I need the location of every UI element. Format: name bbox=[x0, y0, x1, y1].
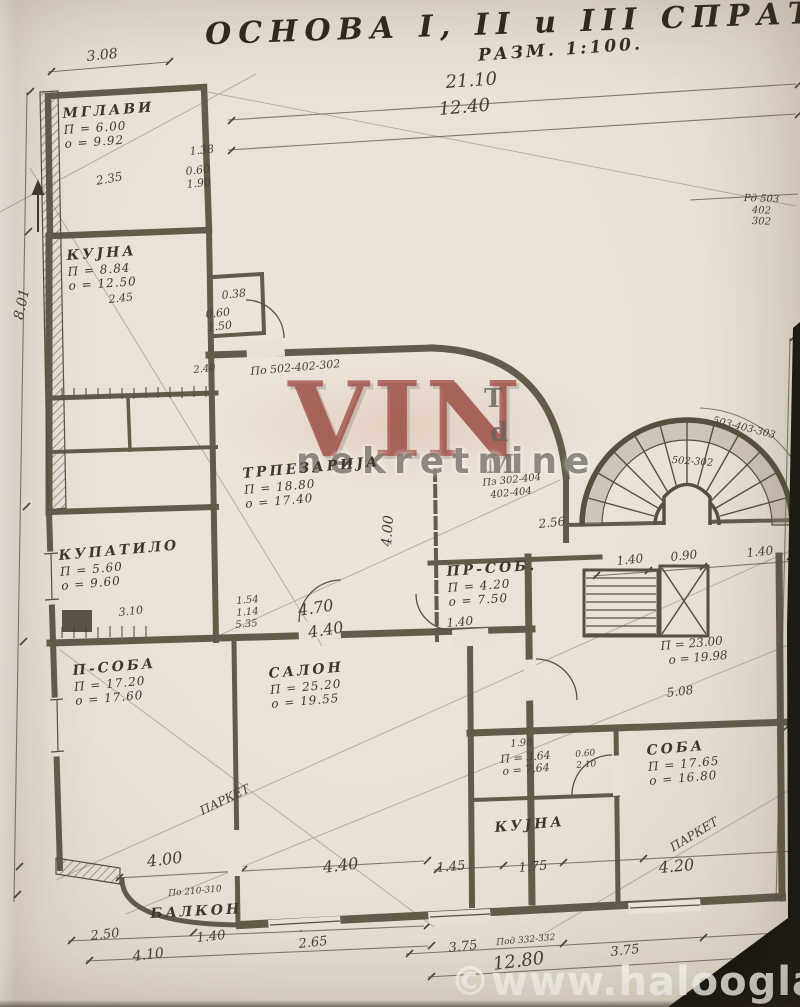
dimension-annotation: 3.75 bbox=[610, 943, 640, 959]
dimension-annotation: 21.10 bbox=[445, 70, 498, 92]
dimension-annotation: 1.40 bbox=[746, 544, 774, 559]
straight-stair-and-shaft bbox=[584, 566, 708, 636]
dimension-annotation: 0.90 bbox=[670, 548, 698, 563]
dimension-annotation: 4.00 bbox=[146, 850, 183, 870]
dimension-annotation: 1.54 bbox=[236, 595, 259, 607]
room-label: САЛОНП = 25.20о = 19.55 bbox=[268, 659, 347, 711]
watermark-site-url: ©www.halooglasi.com bbox=[450, 962, 800, 1002]
dimension-annotation: 4.20 bbox=[658, 857, 695, 876]
dimension-annotation: 3.75 bbox=[448, 939, 478, 955]
dimension-annotation: 4.10 bbox=[132, 946, 165, 964]
room-label: КУЈНАП = 8.84о = 12.50 bbox=[66, 243, 139, 293]
floor-plan-photo: ОСНОВА I, II и III СПРАТА РАЗМ. 1:100. V… bbox=[0, 0, 800, 1007]
dimension-annotation: 1.50 bbox=[207, 319, 233, 333]
dimension-annotation: 1.98 bbox=[510, 738, 533, 750]
dimension-annotation: 2.45 bbox=[108, 291, 134, 305]
dimension-annotation: 5.35 bbox=[235, 619, 258, 631]
dimension-annotation: 4.40 bbox=[322, 856, 359, 876]
dimension-annotation: 402 bbox=[752, 206, 771, 217]
dimension-annotation: 3.10 bbox=[118, 604, 144, 618]
dimension-annotation: 1.40 bbox=[616, 552, 644, 567]
dimension-annotation: 1.40 bbox=[446, 615, 474, 629]
dimension-annotation: 1.38 bbox=[189, 143, 215, 157]
dimension-annotation: 2.56 bbox=[538, 515, 566, 530]
dimension-annotation: 1.90 bbox=[186, 176, 212, 190]
dimension-annotation: 4.00 bbox=[380, 515, 396, 547]
room-label: ПР-СОБ.П = 4.20о = 7.50 bbox=[446, 558, 540, 610]
dimension-annotation: 1.75 bbox=[518, 859, 548, 874]
dimension-annotation: 1.40 bbox=[196, 929, 226, 945]
dimension-annotation: 3.08 bbox=[86, 47, 118, 64]
dimension-annotation: Рд 503 bbox=[744, 194, 780, 205]
dimension-annotation: 2.10 bbox=[576, 760, 597, 771]
room-label: П-СОБАП = 17.20о = 17.60 bbox=[72, 656, 159, 709]
dimension-annotation: 12.40 bbox=[438, 97, 491, 119]
room-label: МГЛАВИП = 6.00о = 9.92 bbox=[62, 100, 157, 152]
watermark-letter-t: T bbox=[484, 386, 503, 412]
dimension-annotation: 1.45 bbox=[436, 859, 466, 874]
dimension-annotation: 2.65 bbox=[298, 935, 328, 951]
dimension-annotation: 302 bbox=[752, 217, 771, 228]
dimension-annotation: 2. bbox=[768, 943, 782, 957]
dimension-annotation: 5.08 bbox=[666, 684, 694, 699]
dimension-annotation: 0.60 bbox=[575, 749, 596, 760]
dimension-annotation: 2.50 bbox=[90, 927, 120, 943]
room-label: СОБАП = 17.65о = 16.80 bbox=[646, 737, 721, 789]
dimension-annotation: 0.38 bbox=[221, 287, 247, 301]
